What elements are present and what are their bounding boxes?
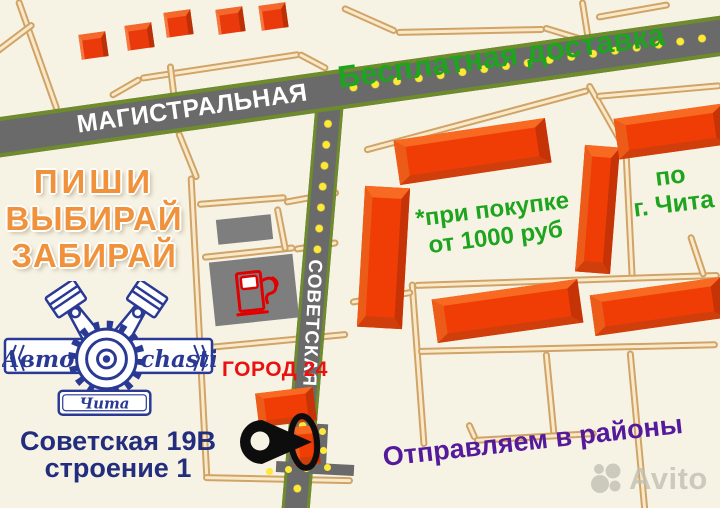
minor-road — [409, 281, 428, 447]
gray-building — [216, 214, 273, 245]
address-text: Советская 19В строение 1 — [2, 428, 234, 482]
small-building — [124, 22, 154, 51]
small-building — [215, 6, 245, 35]
minor-road — [687, 233, 708, 278]
logo-text-left: Авто — [2, 347, 74, 373]
address-line-1: Советская 19В — [2, 428, 234, 455]
road-dots — [312, 114, 332, 262]
address-line-2: строение 1 — [2, 455, 234, 482]
logo-city-banner: Чита — [80, 395, 130, 413]
delivery-area-text: по г. Чита — [617, 156, 720, 224]
minor-road — [296, 50, 329, 72]
minor-road — [341, 4, 399, 35]
building-block — [394, 118, 552, 185]
slogan-line-2: ВЫБИРАЙ — [2, 200, 186, 237]
minor-road — [108, 75, 143, 99]
store-name: ГОРОД 24 — [222, 358, 328, 382]
purchase-condition-text: *при покупке от 1000 руб — [395, 185, 592, 264]
avito-watermark: Avito — [590, 461, 708, 497]
minor-road — [197, 194, 287, 208]
street-label-magistralnaya: МАГИСТРАЛЬНАЯ — [75, 78, 309, 139]
building-block — [614, 104, 720, 160]
minor-road — [596, 82, 720, 100]
slogan-line-3: ЗАБИРАЙ — [2, 237, 186, 274]
gas-station-building — [209, 254, 299, 326]
minor-road — [418, 341, 718, 355]
location-pin-icon — [236, 410, 332, 476]
slogan-text: ПИШИ ВЫБИРАЙ ЗАБИРАЙ — [2, 163, 186, 274]
piston-gear-logo-icon: Авто chasti Чита — [2, 281, 216, 421]
small-building — [258, 2, 288, 31]
building-block — [590, 277, 720, 336]
small-building — [163, 9, 193, 38]
watermark-text: Avito — [629, 461, 708, 497]
map-image: СОВЕТСКАЯ МАГИСТРАЛЬНАЯ — [0, 0, 720, 508]
gas-pump-icon — [232, 263, 287, 320]
building-block — [432, 279, 584, 343]
slogan-line-1: ПИШИ — [2, 163, 186, 200]
small-building — [78, 31, 108, 60]
avito-logo-icon — [590, 461, 626, 497]
logo-text-right: chasti — [140, 347, 216, 373]
minor-road — [15, 0, 61, 112]
